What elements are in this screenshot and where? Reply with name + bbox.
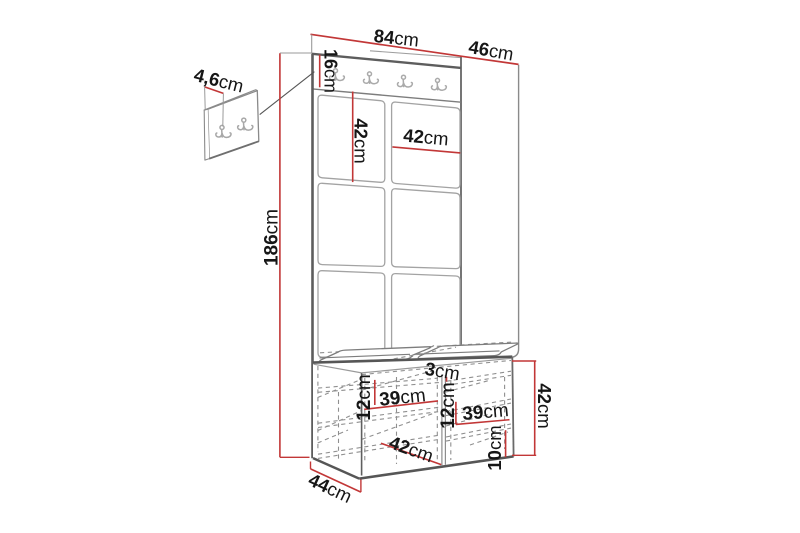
svg-text:39cm: 39cm xyxy=(461,400,509,425)
svg-text:12cm: 12cm xyxy=(354,374,375,420)
svg-text:10cm: 10cm xyxy=(484,425,505,470)
svg-text:186cm: 186cm xyxy=(261,209,282,266)
svg-text:16cm: 16cm xyxy=(321,49,341,93)
svg-text:42cm: 42cm xyxy=(535,383,556,428)
svg-text:12cm: 12cm xyxy=(438,382,459,428)
svg-text:42cm: 42cm xyxy=(403,124,450,149)
svg-text:42cm: 42cm xyxy=(351,118,372,163)
